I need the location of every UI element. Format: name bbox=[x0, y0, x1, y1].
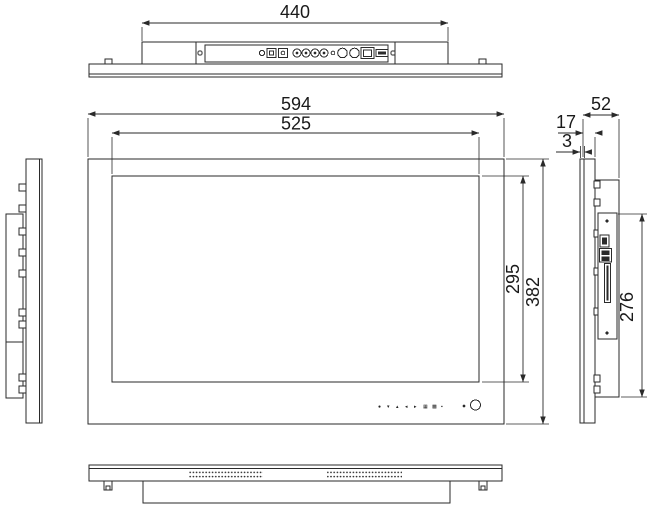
mount-tab bbox=[19, 321, 26, 328]
mount-tab bbox=[19, 270, 26, 277]
bottom-bezel-bar bbox=[89, 465, 502, 481]
top-view: 440 bbox=[89, 2, 502, 77]
source-icon: ▩ bbox=[432, 404, 437, 410]
dim-276-label: 276 bbox=[617, 292, 637, 322]
dim-3-label: 3 bbox=[562, 131, 572, 151]
exit-icon: ▪ bbox=[441, 404, 443, 410]
dim-3: 3 bbox=[556, 131, 590, 158]
technical-drawing-svg: 440 ● ▾ ▴ ◂ ▸ ▦ ▩ ▪ 594 bbox=[0, 0, 649, 508]
usb-port-tongue-icon bbox=[378, 52, 386, 55]
dim-525-label: 525 bbox=[281, 114, 311, 134]
top-bezel-bar bbox=[89, 64, 502, 77]
dim-52-label: 52 bbox=[591, 94, 611, 114]
left-side-view bbox=[6, 159, 42, 423]
dim-295-label: 295 bbox=[503, 264, 523, 294]
right-side-view: 52 17 3 276 bbox=[556, 94, 647, 423]
mount-tab bbox=[19, 374, 26, 381]
power-icon: ● bbox=[378, 404, 381, 410]
hdmi-port-inner-icon bbox=[602, 238, 607, 245]
recess-screw-icon bbox=[605, 331, 608, 334]
recess-screw-icon bbox=[605, 219, 608, 222]
mount-tab bbox=[479, 59, 486, 64]
power-led-icon bbox=[463, 405, 466, 408]
mount-tab bbox=[19, 309, 26, 316]
right-front-bezel bbox=[580, 159, 595, 423]
mount-tab bbox=[594, 199, 600, 206]
dim-276: 276 bbox=[617, 214, 647, 397]
rca-jack-pin-icon bbox=[314, 52, 317, 55]
mount-tab bbox=[19, 386, 26, 393]
usb-port-tongue-icon bbox=[602, 257, 610, 262]
mount-tab bbox=[19, 249, 26, 256]
mount-tab bbox=[594, 386, 600, 393]
front-screen-area bbox=[112, 176, 479, 382]
bottom-rear-module bbox=[143, 481, 450, 503]
card-slot-inner-icon bbox=[607, 266, 609, 301]
bottom-view bbox=[89, 465, 502, 503]
dim-440-label: 440 bbox=[280, 2, 310, 22]
dim-440: 440 bbox=[142, 2, 448, 41]
mount-tab bbox=[19, 184, 26, 191]
menu-icon: ▦ bbox=[423, 404, 428, 410]
dim-382-label: 382 bbox=[523, 277, 543, 307]
drawing-canvas: 440 ● ▾ ▴ ◂ ▸ ▦ ▩ ▪ 594 bbox=[0, 0, 649, 508]
usb-port-tongue-icon bbox=[602, 251, 610, 256]
mount-tab bbox=[19, 228, 26, 235]
mount-tab bbox=[594, 375, 600, 382]
rca-jack-pin-icon bbox=[323, 52, 326, 55]
dim-17-label: 17 bbox=[556, 112, 576, 132]
vent-grille bbox=[188, 471, 263, 479]
vent-grille bbox=[327, 471, 402, 479]
mount-tab bbox=[19, 205, 26, 212]
dim-594-label: 594 bbox=[281, 94, 311, 114]
left-rear-module bbox=[6, 214, 23, 398]
rca-jack-pin-icon bbox=[296, 52, 299, 55]
mount-tab bbox=[594, 181, 600, 188]
front-view: ● ▾ ▴ ◂ ▸ ▦ ▩ ▪ 594 525 bbox=[88, 94, 549, 424]
mount-tab bbox=[105, 59, 112, 64]
mount-tab-notch bbox=[106, 486, 110, 490]
rca-jack-pin-icon bbox=[305, 52, 308, 55]
mount-tab-notch bbox=[481, 486, 485, 490]
